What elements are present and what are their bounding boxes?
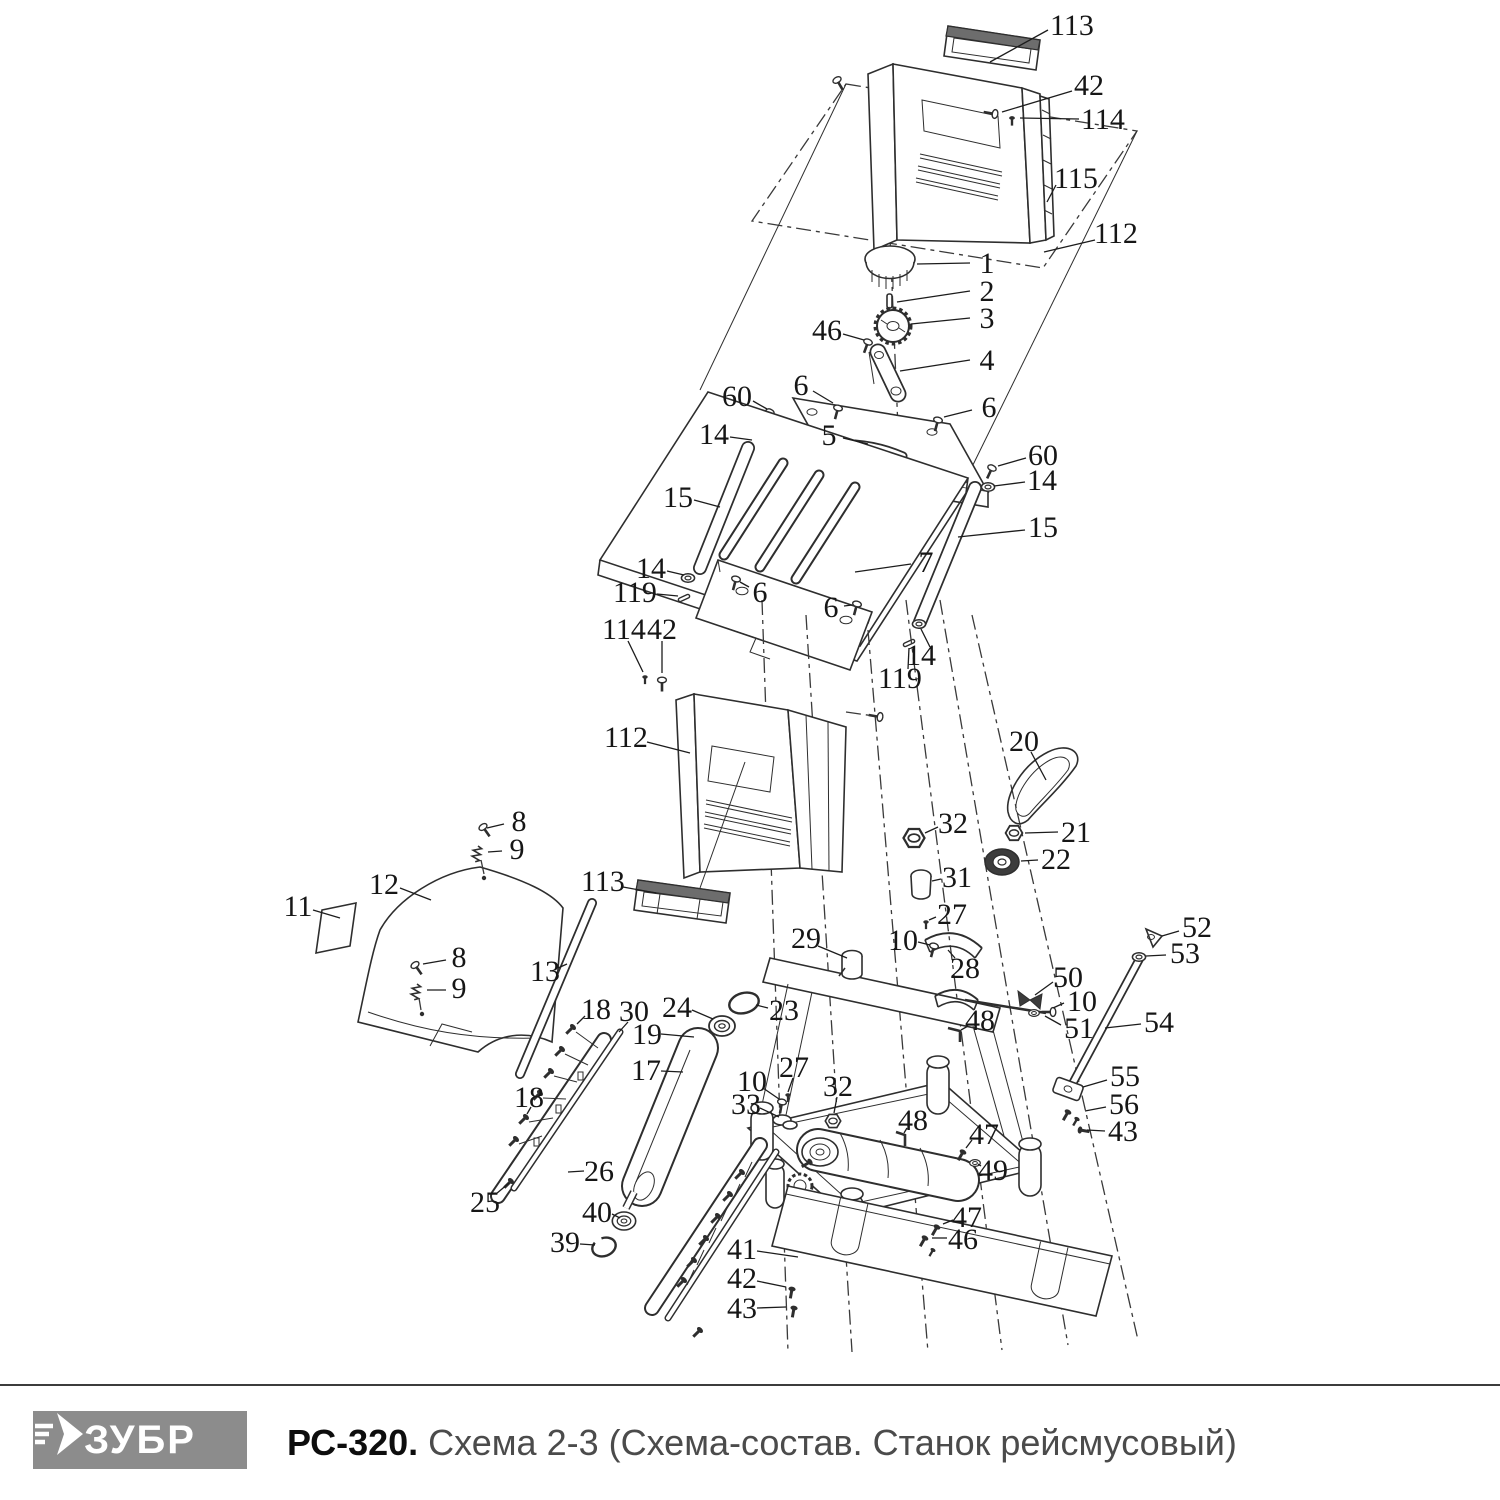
leader-line-56-64 <box>1085 1107 1106 1111</box>
leader-line-53-44 <box>1146 955 1166 956</box>
part-label-60-10: 60 <box>722 380 752 413</box>
leader-line-42-77 <box>757 1281 786 1287</box>
part-label-19-55: 19 <box>632 1018 662 1051</box>
part-label-29-41: 29 <box>791 922 821 955</box>
exploded-diagram: 1134211411511212346460661456014151571411… <box>0 0 1500 1500</box>
part-label-31-35: 31 <box>942 861 972 894</box>
part-handle-insert-mid <box>634 880 730 923</box>
screw-10c <box>776 1098 787 1114</box>
part-label-17-58: 17 <box>631 1054 661 1087</box>
part-label-3-7: 3 <box>980 302 995 335</box>
spring-9a <box>471 845 482 862</box>
part-front-plate-41 <box>772 1186 1112 1316</box>
part-label-54-57: 54 <box>1144 1006 1174 1039</box>
part-label-48-56: 48 <box>965 1004 995 1037</box>
part-label-46-75: 46 <box>948 1223 978 1256</box>
part-belt-drive <box>904 748 1078 899</box>
part-label-18-65: 18 <box>514 1081 544 1114</box>
leader-line-41-76 <box>757 1251 798 1257</box>
leader-line-51-50 <box>1045 1016 1061 1025</box>
screw-56a <box>1060 1108 1072 1122</box>
screw-10b <box>1042 1008 1056 1017</box>
part-label-22-34: 22 <box>1041 843 1071 876</box>
part-label-113-37: 113 <box>581 865 625 898</box>
part-label-25-71: 25 <box>470 1186 500 1219</box>
part-label-9-46: 9 <box>452 972 467 1005</box>
part-label-26-69: 26 <box>584 1155 614 1188</box>
scheme-title: РС-320. Схема 2-3 (Схема-состав. Станок … <box>287 1422 1237 1464</box>
part-label-28-42: 28 <box>950 952 980 985</box>
screw-43b <box>789 1305 798 1318</box>
leader-line-112-4 <box>1044 240 1095 252</box>
leader-line-2-6 <box>897 291 970 302</box>
part-label-46-8: 46 <box>812 314 842 347</box>
leader-line-14-16 <box>994 482 1025 486</box>
washer-14-right <box>981 483 994 491</box>
part-label-43-67: 43 <box>1108 1115 1138 1148</box>
leader-line-24-53 <box>692 1010 713 1019</box>
part-label-9-31: 9 <box>510 833 525 866</box>
leader-line-4-9 <box>900 360 970 371</box>
footer: ЗУБР РС-320. Схема 2-3 (Схема-состав. Ст… <box>0 1384 1500 1500</box>
leader-line-27-39 <box>929 917 936 920</box>
part-label-113-0: 113 <box>1050 9 1094 42</box>
pin-48a <box>948 1028 960 1042</box>
part-label-15-17: 15 <box>663 481 693 514</box>
part-label-33-63: 33 <box>731 1088 761 1121</box>
oring-23 <box>727 989 761 1016</box>
part-label-15-18: 15 <box>1028 511 1058 544</box>
part-label-18-51: 18 <box>581 993 611 1026</box>
part-label-7-19: 7 <box>919 546 934 579</box>
part-label-27-39: 27 <box>937 898 967 931</box>
part-label-47-68: 47 <box>969 1118 999 1151</box>
screw-114-mid <box>642 675 647 684</box>
leader-line-29-41 <box>818 946 847 958</box>
leader-line-9-31 <box>488 851 502 852</box>
model-number: РС-320. <box>287 1422 418 1463</box>
leader-line-50-48 <box>1035 982 1053 995</box>
part-label-114-26: 114 <box>602 613 646 646</box>
part-label-23-54: 23 <box>769 994 799 1027</box>
part-label-112-28: 112 <box>604 721 648 754</box>
part-label-119-21: 119 <box>613 576 657 609</box>
part-label-14-16: 14 <box>1027 464 1057 497</box>
leader-line-6-12 <box>944 410 972 417</box>
leader-line-8-30 <box>487 824 504 828</box>
part-base-unit <box>748 1056 1112 1318</box>
part-label-42-27: 42 <box>647 613 677 646</box>
part-label-27-60: 27 <box>779 1051 809 1084</box>
part-label-119-25: 119 <box>878 662 922 695</box>
leader-line-10-49 <box>1053 1003 1064 1008</box>
leader-line-54-57 <box>1105 1024 1141 1028</box>
part-top-cover-panel <box>832 64 1054 250</box>
part-label-10-40: 10 <box>888 924 918 957</box>
part-label-14-13: 14 <box>699 418 729 451</box>
part-label-6-11: 6 <box>794 369 809 402</box>
bearing-40 <box>612 1212 635 1230</box>
leader-line-3-7 <box>911 318 970 324</box>
part-label-40-72: 40 <box>582 1196 612 1229</box>
washer-14-right2 <box>912 620 925 628</box>
part-label-11-38: 11 <box>284 890 313 923</box>
logo-text: ЗУБР <box>84 1420 196 1460</box>
scheme-subtitle: Схема 2-3 (Схема-состав. Станок рейсмусо… <box>418 1422 1237 1463</box>
part-label-32-62: 32 <box>823 1070 853 1103</box>
part-label-114-2: 114 <box>1081 103 1125 136</box>
screw-56b <box>1071 1116 1081 1127</box>
leader-line-26-69 <box>568 1171 584 1172</box>
nut-21 <box>1006 826 1023 840</box>
part-mid-cover-panel <box>642 675 883 888</box>
part-label-6-12: 6 <box>982 391 997 424</box>
part-handle-insert-top <box>944 26 1040 70</box>
washer-53 <box>1132 953 1145 961</box>
screw-42-mid <box>658 677 667 691</box>
part-label-20-29: 20 <box>1009 725 1039 758</box>
leader-line-1-5 <box>917 263 970 264</box>
leader-line-22-34 <box>1021 860 1038 861</box>
part-label-13-47: 13 <box>530 955 560 988</box>
screw-60-right <box>983 464 997 481</box>
nut-32a <box>904 829 925 847</box>
part-label-42-1: 42 <box>1074 69 1104 102</box>
part-label-32-32: 32 <box>938 807 968 840</box>
leader-line-31-35 <box>932 879 941 881</box>
part-sticker <box>316 903 356 953</box>
nut-32b <box>825 1114 840 1127</box>
zubr-logo: ЗУБР <box>33 1411 247 1469</box>
leader-line-10-40 <box>918 942 930 945</box>
part-label-115-3: 115 <box>1054 162 1098 195</box>
leader-line-52-43 <box>1162 931 1179 936</box>
part-label-51-50: 51 <box>1064 1012 1094 1045</box>
pin-119-left <box>678 594 690 602</box>
part-label-12-36: 12 <box>369 868 399 901</box>
schematic-page: 1134211411511212346460661456014151571411… <box>0 0 1500 1500</box>
part-label-42-77: 42 <box>727 1262 757 1295</box>
screw-42b <box>787 1286 796 1299</box>
lever-29 <box>839 951 862 980</box>
leader-line-55-61 <box>1083 1080 1107 1087</box>
knob-50 <box>1018 991 1042 1009</box>
oring-39 <box>590 1234 619 1259</box>
leader-line-46-8 <box>843 334 864 340</box>
part-label-53-44: 53 <box>1170 937 1200 970</box>
part-label-48-66: 48 <box>898 1104 928 1137</box>
screw-top-left <box>832 75 847 92</box>
zubr-arrow-icon <box>33 1411 85 1457</box>
part-label-5-14: 5 <box>822 419 837 452</box>
leader-line-60-15 <box>998 458 1026 466</box>
leader-line-43-78 <box>757 1307 786 1308</box>
part-dust-chute <box>316 822 563 1052</box>
part-knob-assembly <box>860 246 915 395</box>
part-label-39-74: 39 <box>550 1226 580 1259</box>
bushing-31 <box>911 870 931 899</box>
washer-51 <box>1029 1010 1040 1017</box>
part-label-112-4: 112 <box>1094 217 1138 250</box>
screw-27a <box>923 920 928 929</box>
part-label-4-9: 4 <box>980 344 995 377</box>
part-label-6-23: 6 <box>824 591 839 624</box>
part-label-6-22: 6 <box>753 576 768 609</box>
leader-line-15-18 <box>958 530 1025 537</box>
part-label-49-70: 49 <box>978 1154 1008 1187</box>
part-label-24-53: 24 <box>662 991 692 1024</box>
screw-8a <box>478 822 493 839</box>
part-label-8-45: 8 <box>452 941 467 974</box>
leader-line-21-33 <box>1025 832 1058 833</box>
part-label-43-78: 43 <box>727 1292 757 1325</box>
